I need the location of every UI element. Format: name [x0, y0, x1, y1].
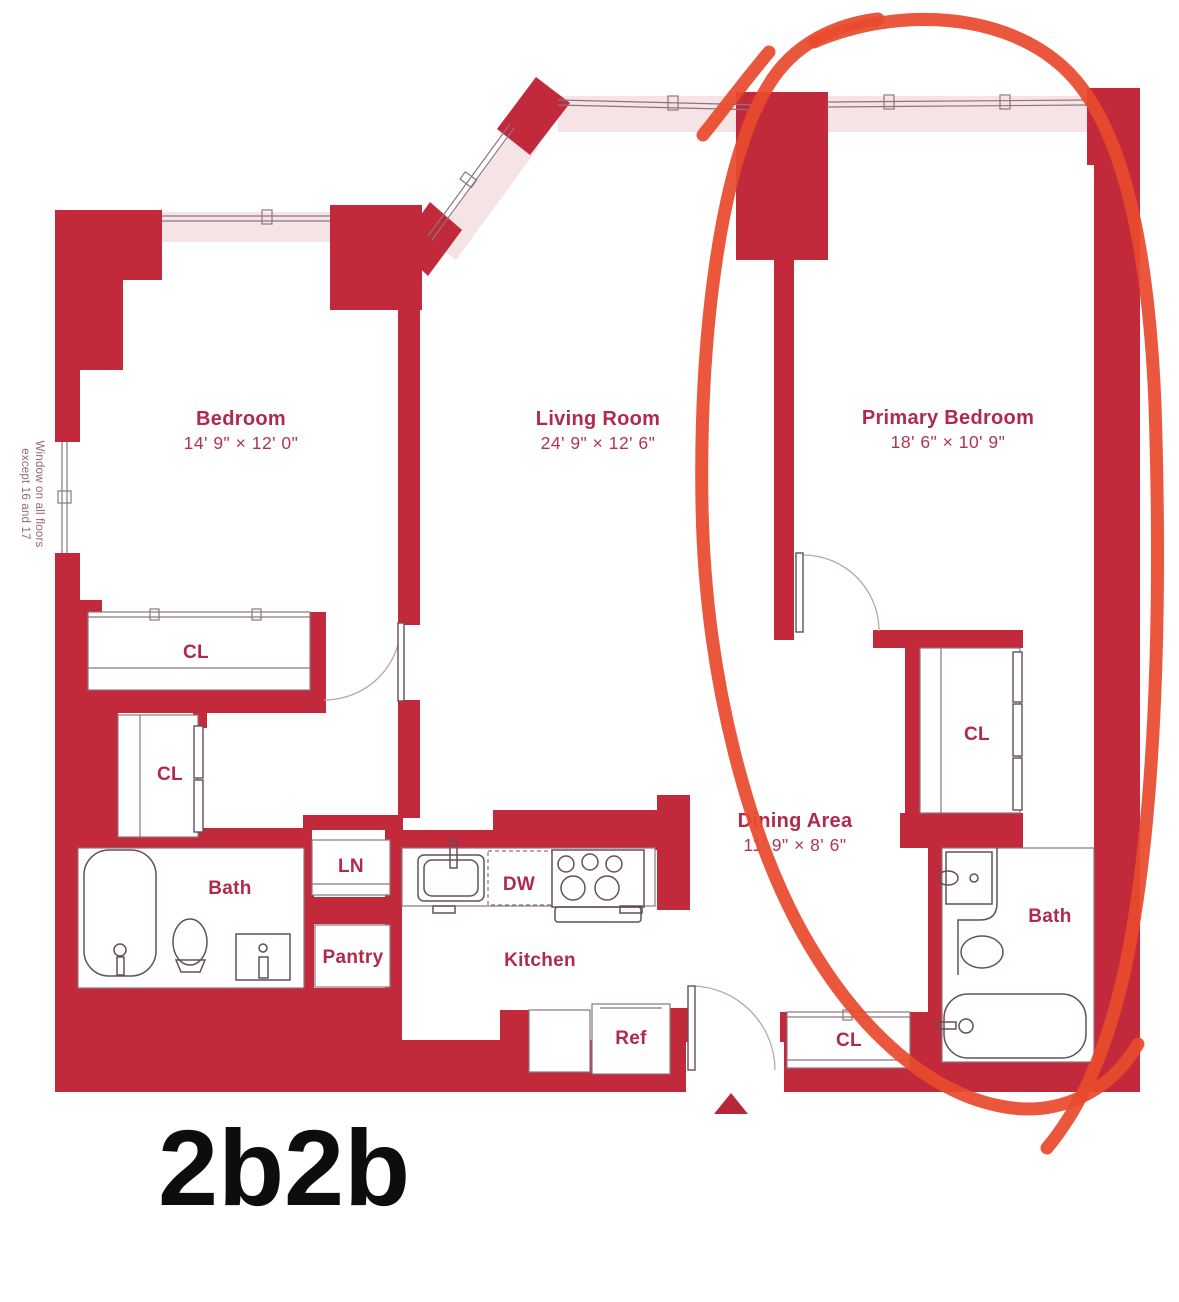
room-label-primary: Primary Bedroom — [862, 407, 1034, 429]
room-label-linen: LN — [338, 856, 364, 877]
room-dims-bedroom: 14' 9" × 12' 0" — [184, 433, 299, 453]
window-note-line1: Window on all floors — [33, 441, 45, 548]
room-label-closet-hall: CL — [157, 764, 183, 785]
window-bands — [162, 96, 1087, 260]
entry-arrow-icon — [714, 1093, 748, 1114]
entry-door-leaf — [688, 986, 695, 1070]
room-label-closet-entry: CL — [836, 1030, 862, 1051]
bathtub-primary — [944, 994, 1086, 1058]
sink-primary — [946, 852, 992, 904]
window-glazing — [58, 95, 1087, 553]
bedroom-door-leaf — [398, 623, 404, 701]
room-label-closet-bedroom: CL — [183, 642, 209, 663]
room-label-closet-primary: CL — [964, 724, 990, 745]
room-label-dishwasher: DW — [503, 874, 535, 895]
window-note-line2: except 16 and 17 — [19, 448, 31, 539]
floor-plan: Bedroom 14' 9" × 12' 0" Living Room 24' … — [0, 0, 1179, 1302]
unit-type-caption: 2b2b — [158, 1107, 410, 1228]
room-label-bedroom: Bedroom — [196, 408, 286, 430]
room-label-bath-primary: Bath — [1028, 906, 1071, 927]
toilet-primary — [961, 936, 1003, 968]
room-label-kitchen: Kitchen — [504, 950, 576, 971]
room-label-living: Living Room — [536, 408, 660, 430]
room-dims-living: 24' 9" × 12' 6" — [541, 433, 656, 453]
bedroom-door-arc — [324, 623, 401, 700]
entry-door-arc — [691, 986, 775, 1070]
window-note: Window on all floors except 16 and 17 — [19, 441, 45, 548]
cabinet-box — [529, 1010, 590, 1072]
room-label-bath-left: Bath — [208, 878, 251, 899]
floor-plan-page: Bedroom 14' 9" × 12' 0" Living Room 24' … — [0, 0, 1179, 1302]
room-dims-primary: 18' 6" × 10' 9" — [891, 432, 1006, 452]
toilet — [173, 919, 207, 965]
room-label-refrigerator: Ref — [615, 1028, 647, 1049]
primary-door-arc — [803, 555, 879, 631]
primary-door-leaf — [796, 553, 803, 632]
room-label-pantry: Pantry — [323, 947, 384, 968]
